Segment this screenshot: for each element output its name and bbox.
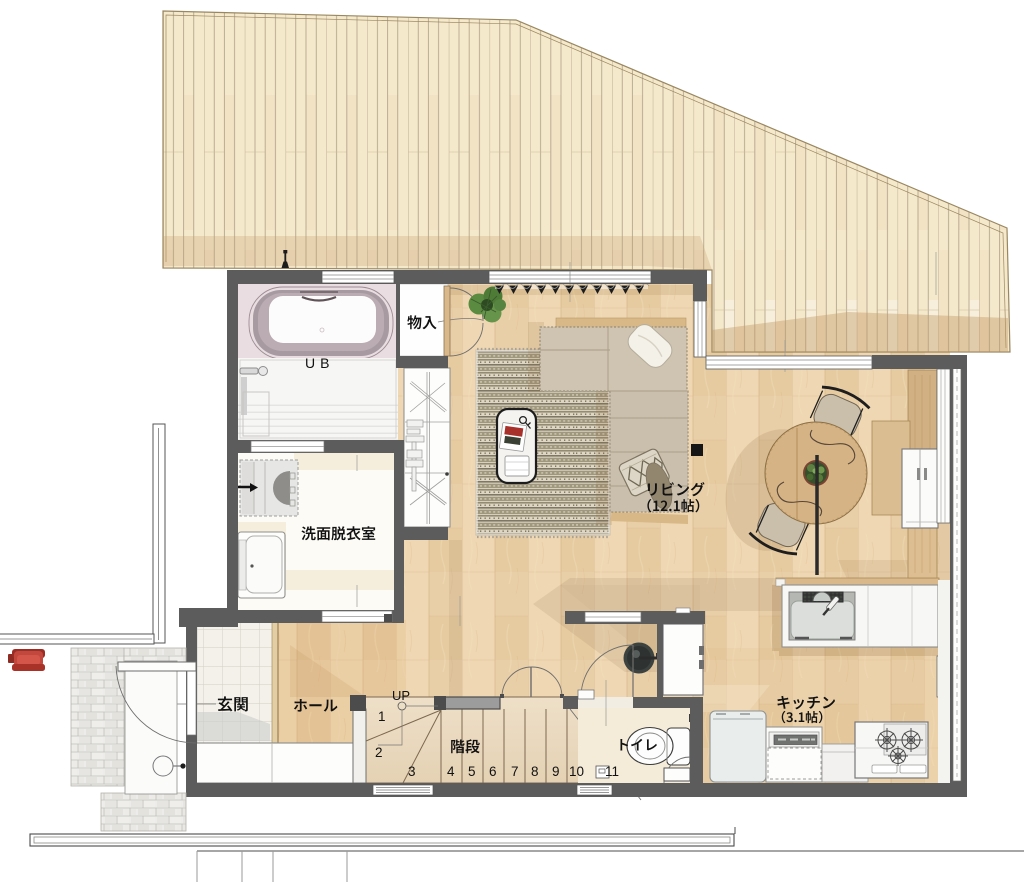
svg-text:7: 7 — [511, 764, 519, 779]
svg-text:6: 6 — [489, 764, 497, 779]
svg-text:1: 1 — [378, 709, 386, 724]
svg-text:2: 2 — [375, 745, 383, 760]
svg-text:5: 5 — [468, 764, 476, 779]
svg-text:9: 9 — [552, 764, 560, 779]
svg-text:10: 10 — [569, 764, 584, 779]
svg-text:8: 8 — [531, 764, 539, 779]
svg-text:11: 11 — [605, 764, 619, 779]
svg-text:UP: UP — [392, 688, 410, 703]
svg-text:UB: UB — [305, 355, 334, 371]
svg-text:4: 4 — [447, 764, 455, 779]
svg-text:3: 3 — [408, 764, 416, 779]
